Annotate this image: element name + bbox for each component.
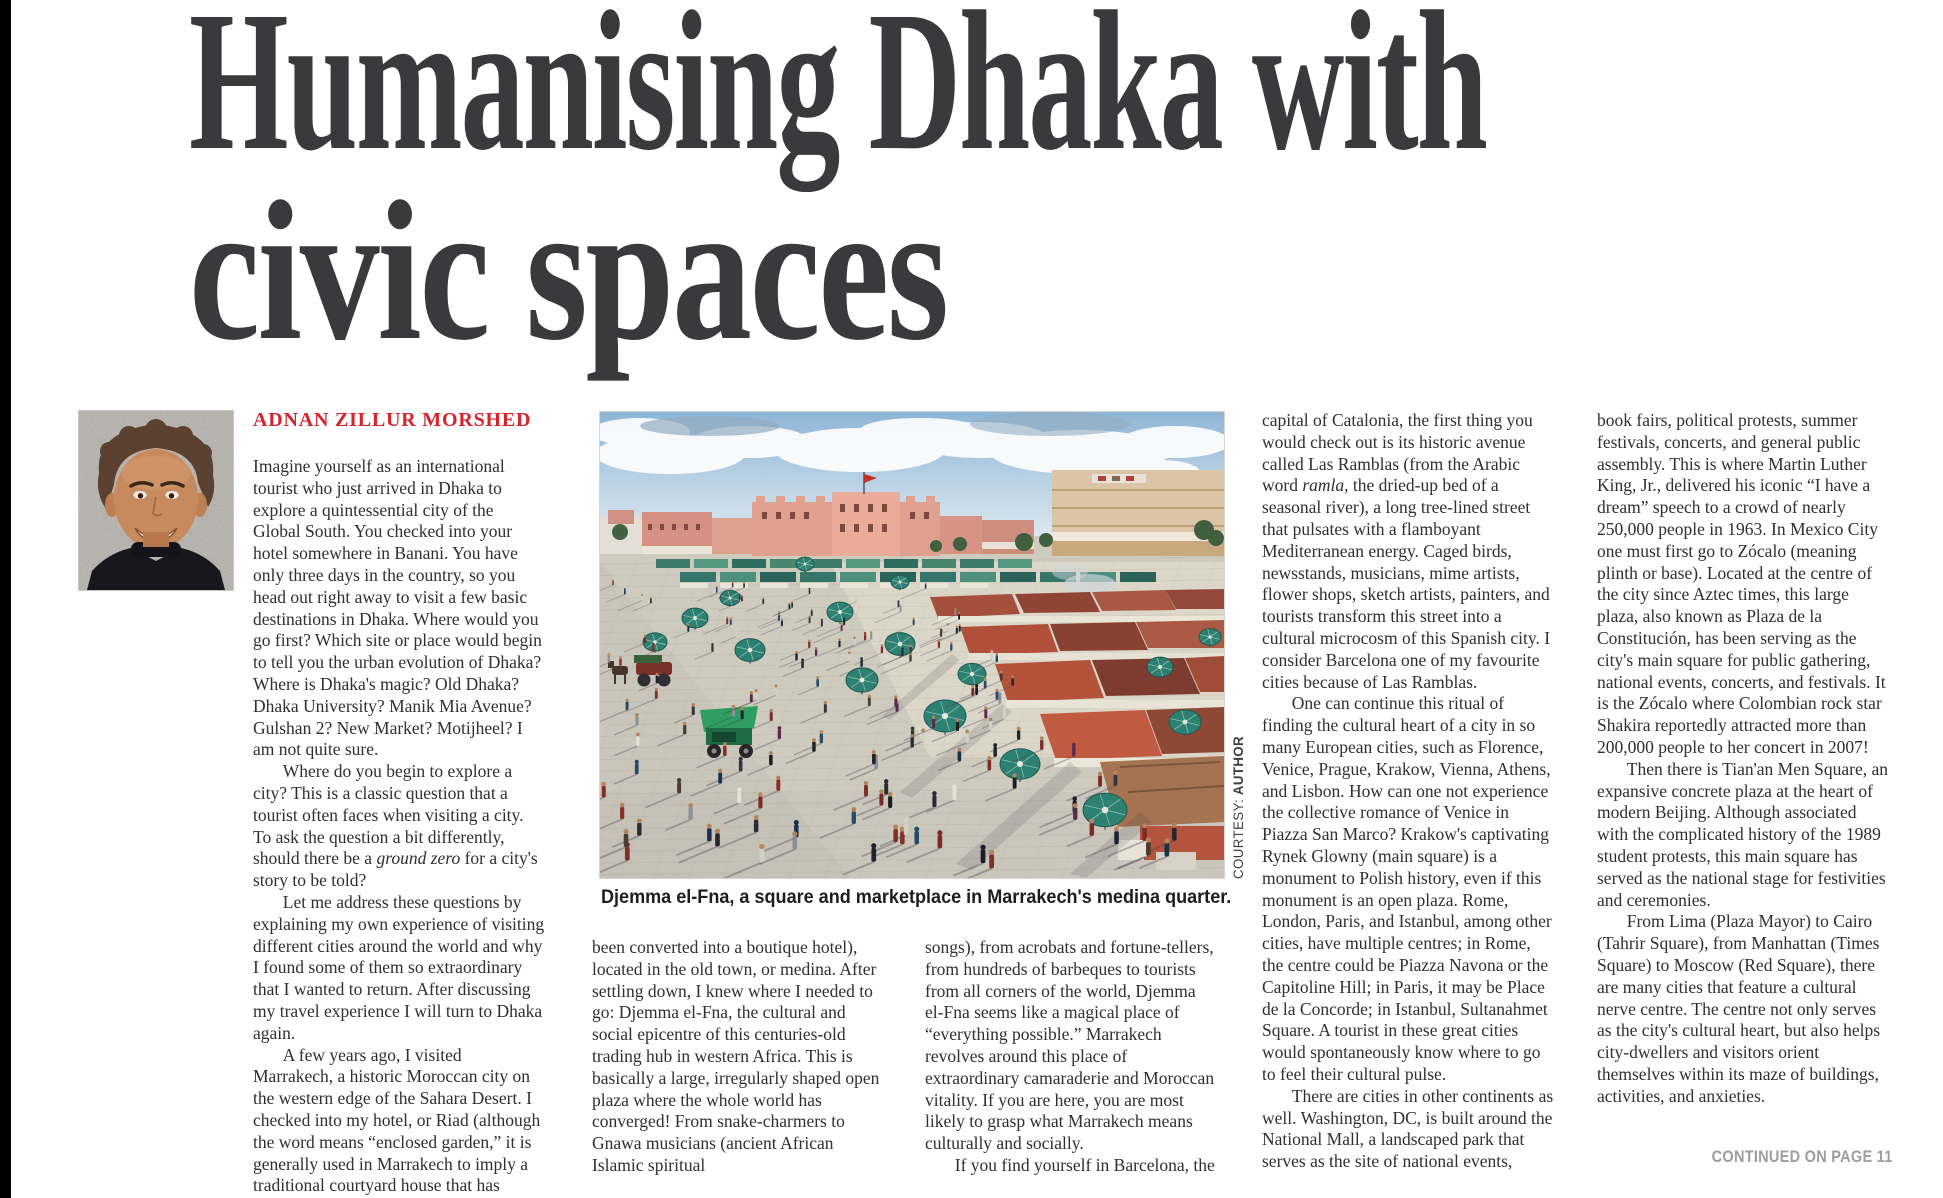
paragraph: Imagine yourself as an international tou… (253, 456, 545, 761)
article-photo (600, 412, 1224, 878)
author-portrait (79, 411, 233, 590)
page-edge-strip (0, 0, 11, 1198)
photo-caption: Djemma el-Fna, a square and marketplace … (601, 887, 1231, 909)
paragraph: Let me address these questions by explai… (253, 892, 545, 1045)
paragraph: If you find yourself in Barcelona, the (925, 1155, 1217, 1177)
continued-notice: CONTINUED ON PAGE 11 (1712, 1148, 1893, 1167)
photo-credit: COURTESY:AUTHOR (1230, 736, 1246, 879)
headline-line-2: civic spaces (189, 172, 947, 372)
paragraph: Where do you begin to explore a city? Th… (253, 761, 545, 892)
article-column-4: capital of Catalonia, the first thing yo… (1262, 410, 1554, 1173)
paragraph: been converted into a boutique hotel), l… (592, 937, 886, 1177)
author-portrait-illustration (79, 411, 233, 590)
paragraph: book fairs, political protests, summer f… (1597, 410, 1889, 759)
paragraph: There are cities in other continents as … (1262, 1086, 1554, 1173)
paragraph: Then there is Tian'an Men Square, an exp… (1597, 759, 1889, 912)
credit-label: COURTESY: (1230, 799, 1246, 879)
paragraph: A few years ago, I visited Marrakech, a … (253, 1045, 545, 1198)
credit-value: AUTHOR (1230, 736, 1246, 795)
headline-line-1: Humanising Dhaka with (189, 0, 1486, 182)
paragraph: capital of Catalonia, the first thing yo… (1262, 410, 1554, 693)
article-column-1: Imagine yourself as an international tou… (253, 456, 545, 1197)
author-byline: ADNAN ZILLUR MORSHED (253, 409, 531, 432)
market-square-illustration (600, 412, 1224, 878)
article-column-5: book fairs, political protests, summer f… (1597, 410, 1889, 1108)
paragraph: songs), from acrobats and fortune-teller… (925, 937, 1217, 1155)
article-column-2: been converted into a boutique hotel), l… (592, 937, 886, 1177)
paragraph: From Lima (Plaza Mayor) to Cairo (Tahrir… (1597, 911, 1889, 1107)
article-column-3: songs), from acrobats and fortune-teller… (925, 937, 1217, 1177)
paragraph: One can continue this ritual of finding … (1262, 693, 1554, 1085)
